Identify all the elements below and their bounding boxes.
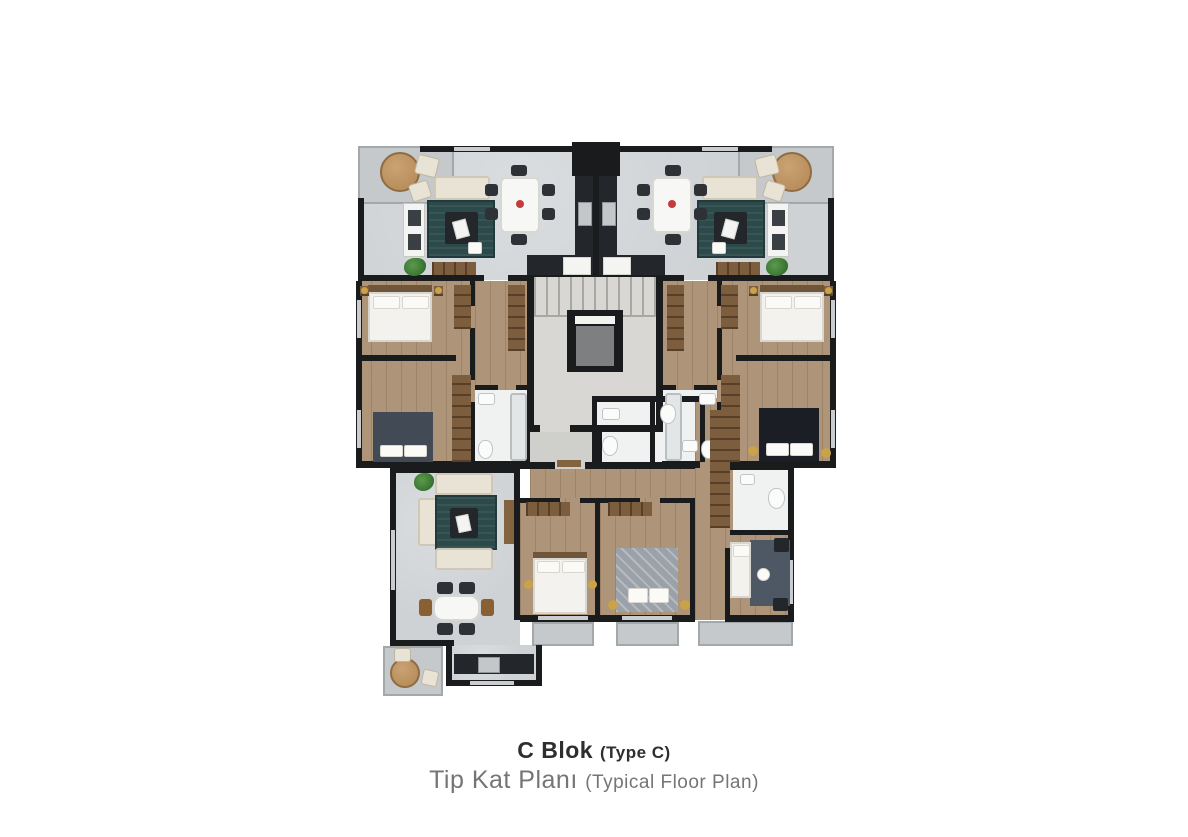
wall-bedroomA-B bbox=[595, 498, 600, 620]
sofa-bottom-bottom bbox=[435, 548, 493, 570]
window-left-wing-2 bbox=[357, 410, 361, 448]
window-kitchen bbox=[470, 681, 514, 685]
wardrobe-left-wing-1 bbox=[454, 285, 471, 329]
hall-cabinet-right bbox=[667, 285, 684, 351]
dining-chair bbox=[542, 208, 555, 220]
dining-chair bbox=[459, 582, 475, 594]
block-title: C Blok bbox=[517, 737, 593, 763]
block-title-note: (Type C) bbox=[600, 743, 671, 762]
window-bedroomB bbox=[622, 616, 672, 620]
wall-core-left bbox=[527, 270, 534, 432]
wall-bath3-bottom bbox=[730, 530, 792, 535]
dining-chair bbox=[542, 184, 555, 196]
balcony-bottom-2 bbox=[616, 622, 679, 646]
bed-pillow bbox=[402, 296, 429, 309]
wall-right-hall-2 bbox=[717, 328, 722, 380]
desk-chair bbox=[757, 568, 770, 581]
dining-chair bbox=[511, 165, 527, 176]
window-top-right bbox=[702, 147, 738, 151]
dining-chair bbox=[694, 208, 707, 220]
bed-pillow bbox=[733, 545, 750, 557]
plan-title-note: (Typical Floor Plan) bbox=[585, 772, 759, 793]
plan-title: Tip Kat Planı bbox=[429, 766, 578, 794]
bathtub-left bbox=[510, 393, 527, 461]
wall-left-hall-2 bbox=[470, 328, 475, 380]
wardrobe-left-wing-2 bbox=[452, 375, 471, 462]
sofa-bottom-top bbox=[435, 473, 493, 495]
hall-cabinet-left bbox=[508, 285, 525, 351]
window-left-wing-1 bbox=[357, 300, 361, 338]
bedside-pouf bbox=[821, 448, 831, 458]
dining-chair bbox=[637, 208, 650, 220]
wall-top-left bbox=[420, 146, 572, 152]
bed-pillow bbox=[766, 443, 789, 456]
bed-pillow bbox=[794, 296, 821, 309]
window-right-wing-1 bbox=[831, 300, 835, 338]
wall-right-bedroom-divider bbox=[736, 355, 836, 361]
dining-chair bbox=[511, 234, 527, 245]
study-cabinet bbox=[773, 598, 788, 611]
entry-hall-floor bbox=[530, 469, 695, 498]
wall-bedroomB-corridor bbox=[690, 498, 695, 620]
wall-study-bottom bbox=[725, 615, 794, 622]
bathroom-sink bbox=[602, 408, 620, 420]
bed-pillow bbox=[628, 588, 648, 603]
wall-h2-left-a bbox=[358, 275, 484, 281]
elevator-door-strip bbox=[575, 316, 615, 324]
wall-left-bath-top-a bbox=[475, 385, 498, 390]
table-flower bbox=[668, 200, 676, 208]
window-top-left bbox=[454, 147, 490, 151]
caption-block-title: C Blok (Type C) bbox=[0, 737, 1188, 764]
dining-chair bbox=[437, 623, 453, 635]
toilet bbox=[660, 404, 676, 424]
dining-chair bbox=[459, 623, 475, 635]
balcony-bottom-3 bbox=[698, 621, 793, 646]
kitchen-sink-right bbox=[602, 202, 616, 226]
bed-headboard bbox=[760, 285, 824, 292]
bedside-pouf bbox=[680, 600, 690, 610]
window-bedroomA bbox=[538, 616, 588, 620]
balcony-bottom-1 bbox=[532, 622, 594, 646]
caption: C Blok (Type C) Tip Kat Planı (Typical F… bbox=[0, 737, 1188, 795]
wall-h2-right-a bbox=[662, 275, 684, 281]
wall-core-bottom-a bbox=[527, 425, 540, 432]
wardrobe-bedroom-a bbox=[526, 502, 570, 516]
shelf-nook bbox=[408, 210, 421, 226]
wall-left-bedroom-divider bbox=[356, 355, 456, 361]
wall-bath1-bath2 bbox=[650, 396, 655, 462]
wardrobe-right-wing-1 bbox=[721, 285, 738, 329]
wall-bath3-top bbox=[730, 464, 792, 470]
caption-plan-title: Tip Kat Planı (Typical Floor Plan) bbox=[0, 766, 1188, 795]
lamp bbox=[750, 287, 757, 294]
console-right bbox=[716, 262, 760, 275]
bed-pillow bbox=[537, 561, 560, 573]
lamp bbox=[361, 287, 368, 294]
dining-chair bbox=[665, 165, 681, 176]
wall-living-bedroomA bbox=[514, 467, 520, 620]
wall-entry-top-b bbox=[585, 462, 695, 469]
corridor-wardrobe bbox=[710, 410, 730, 528]
toilet bbox=[478, 440, 493, 459]
balcony-chair bbox=[421, 669, 440, 688]
tv-unit-left bbox=[403, 203, 425, 257]
wall-entry-top-a bbox=[520, 462, 555, 469]
pouf bbox=[468, 242, 482, 254]
shelf-nook bbox=[408, 234, 421, 250]
bathroom-sink bbox=[682, 440, 698, 452]
wall-top-right bbox=[620, 146, 772, 152]
tv-unit-right bbox=[767, 203, 789, 257]
bedside-pouf bbox=[524, 580, 533, 589]
fridge-right bbox=[603, 257, 631, 275]
bed-pillow bbox=[649, 588, 669, 603]
dining-chair-brown bbox=[419, 599, 432, 616]
sofa-right-apartment bbox=[702, 176, 758, 200]
floor-plan bbox=[350, 140, 842, 700]
bathroom-sink bbox=[478, 393, 495, 405]
console-left bbox=[432, 262, 476, 275]
dining-chair-brown bbox=[481, 599, 494, 616]
kitchen-sink-left bbox=[578, 202, 592, 226]
elevator-car bbox=[576, 326, 614, 366]
balcony-table-bottom-left bbox=[390, 658, 420, 688]
bed-pillow bbox=[790, 443, 813, 456]
wall-left-outer-top bbox=[358, 198, 364, 280]
dining-table-bottom bbox=[433, 595, 480, 621]
shelf-nook bbox=[772, 210, 785, 226]
window-right-wing-2 bbox=[831, 410, 835, 448]
wardrobe-bedroom-b bbox=[608, 502, 652, 516]
bed-headboard bbox=[368, 285, 432, 292]
dining-chair bbox=[665, 234, 681, 245]
wall-right-outer-top bbox=[828, 198, 834, 280]
bedside-pouf bbox=[608, 600, 618, 610]
kitchen-sink-bottom bbox=[478, 657, 500, 673]
wall-right-bath-top-b bbox=[694, 385, 717, 390]
wall-kitchen-right bbox=[536, 645, 542, 686]
bed-pillow bbox=[380, 445, 403, 457]
lamp bbox=[825, 287, 832, 294]
bed-pillow bbox=[373, 296, 400, 309]
fridge-left bbox=[563, 257, 591, 275]
dining-chair bbox=[437, 582, 453, 594]
bed-pillow bbox=[562, 561, 585, 573]
toilet bbox=[602, 436, 618, 456]
lamp bbox=[435, 287, 442, 294]
study-desk bbox=[774, 538, 789, 552]
pouf bbox=[712, 242, 726, 254]
bathroom-sink bbox=[740, 474, 755, 485]
wall-right-bath-top-a bbox=[662, 385, 676, 390]
dining-chair bbox=[485, 208, 498, 220]
toilet bbox=[768, 488, 785, 509]
door-panel-living bbox=[504, 500, 514, 544]
dining-chair bbox=[694, 184, 707, 196]
window-living-left bbox=[391, 530, 395, 590]
bedside-pouf bbox=[588, 580, 597, 589]
page: C Blok (Type C) Tip Kat Planı (Typical F… bbox=[0, 0, 1188, 837]
bedside-pouf bbox=[748, 446, 758, 456]
bathroom-sink bbox=[699, 393, 716, 405]
entry-door-bottom-apartment bbox=[557, 460, 581, 467]
table-flower bbox=[516, 200, 524, 208]
wall-h2-right-b bbox=[708, 275, 834, 281]
shelf-nook bbox=[772, 234, 785, 250]
sofa-left-apartment bbox=[434, 176, 490, 200]
bed-pillow bbox=[404, 445, 427, 457]
balcony-chair bbox=[394, 648, 411, 662]
dining-chair bbox=[485, 184, 498, 196]
wall-bath1-left bbox=[592, 396, 597, 462]
wall-living-bottom bbox=[390, 640, 454, 646]
bed-pillow bbox=[765, 296, 792, 309]
dining-chair bbox=[637, 184, 650, 196]
